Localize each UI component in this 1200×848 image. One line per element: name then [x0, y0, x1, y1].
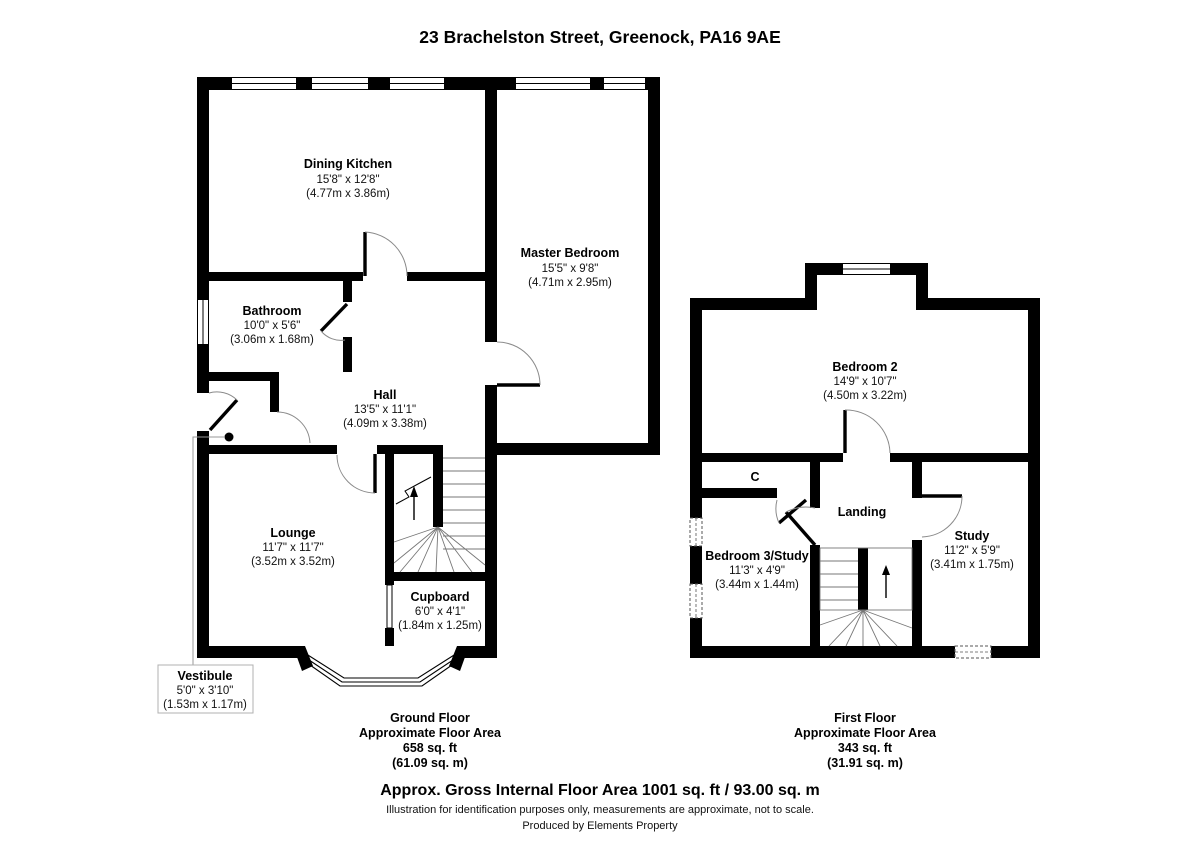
- produced-by-text: Produced by Elements Property: [522, 820, 678, 832]
- room-dims-metric: (3.52m x 3.52m): [251, 556, 335, 568]
- room-label: Dining Kitchen: [304, 157, 392, 171]
- floor-summary-line: (31.91 sq. m): [827, 756, 903, 770]
- floor-summary-line: Approximate Floor Area: [359, 726, 502, 740]
- room-dims-metric: (1.53m x 1.17m): [163, 699, 247, 711]
- room-label: Cupboard: [410, 590, 469, 604]
- room-label: Landing: [838, 505, 887, 519]
- room-bedroom-2: Bedroom 2 14'9" x 10'7" (4.50m x 3.22m): [823, 360, 907, 402]
- room-dining-kitchen: Dining Kitchen 15'8" x 12'8" (4.77m x 3.…: [304, 157, 392, 200]
- dashed-window: [955, 646, 991, 658]
- floor-summary-line: Ground Floor: [390, 711, 470, 725]
- dashed-window: [690, 518, 702, 546]
- room-dims-metric: (4.50m x 3.22m): [823, 390, 907, 402]
- room-dims-imperial: 5'0" x 3'10": [177, 685, 234, 697]
- floorplan-canvas: 23 Brachelston Street, Greenock, PA16 9A…: [0, 0, 1200, 848]
- floor-summary-line: First Floor: [834, 711, 896, 725]
- room-label: Hall: [374, 388, 397, 402]
- room-dims-metric: (3.41m x 1.75m): [930, 559, 1014, 571]
- room-label: Bedroom 3/Study: [705, 549, 809, 563]
- room-label: Study: [955, 529, 990, 543]
- room-dims-imperial: 15'5" x 9'8": [542, 263, 599, 275]
- room-dims-metric: (4.77m x 3.86m): [306, 188, 390, 200]
- room-dims-imperial: 10'0" x 5'6": [244, 320, 301, 332]
- room-dims-imperial: 14'9" x 10'7": [833, 376, 896, 388]
- room-cupboard-c: C: [750, 470, 759, 484]
- dashed-window: [690, 584, 702, 618]
- window: [232, 77, 296, 90]
- window: [516, 77, 590, 90]
- room-dims-imperial: 11'3" x 4'9": [729, 565, 785, 577]
- window: [312, 77, 368, 90]
- room-label: Bedroom 2: [832, 360, 897, 374]
- bathroom-window: [197, 300, 209, 344]
- window: [390, 77, 444, 90]
- room-label: Bathroom: [242, 304, 301, 318]
- page-background: [0, 0, 1200, 848]
- room-dims-metric: (4.09m x 3.38m): [343, 418, 427, 430]
- vestibule-marker-dot: [225, 433, 234, 442]
- room-dims-metric: (4.71m x 2.95m): [528, 277, 612, 289]
- room-dims-imperial: 15'8" x 12'8": [316, 174, 379, 186]
- floor-summary-line: 658 sq. ft: [403, 741, 458, 755]
- window: [604, 77, 645, 90]
- floor-summary-line: 343 sq. ft: [838, 741, 893, 755]
- room-label: C: [750, 470, 759, 484]
- room-label: Vestibule: [178, 669, 233, 683]
- floor-summary-line: (61.09 sq. m): [392, 756, 468, 770]
- room-dims-metric: (3.44m x 1.44m): [715, 579, 799, 591]
- floor-summary-line: Approximate Floor Area: [794, 726, 937, 740]
- gross-area-text: Approx. Gross Internal Floor Area 1001 s…: [380, 782, 820, 799]
- dormer-window: [843, 263, 890, 275]
- room-dims-imperial: 6'0" x 4'1": [415, 606, 465, 618]
- room-landing: Landing: [838, 505, 887, 519]
- room-dims-imperial: 13'5" x 11'1": [354, 404, 416, 416]
- room-dims-metric: (3.06m x 1.68m): [230, 334, 314, 346]
- room-dims-metric: (1.84m x 1.25m): [398, 620, 482, 632]
- room-label: Lounge: [270, 526, 315, 540]
- room-dims-imperial: 11'7" x 11'7": [262, 542, 323, 554]
- page-title: 23 Brachelston Street, Greenock, PA16 9A…: [419, 27, 781, 47]
- room-label: Master Bedroom: [521, 246, 620, 260]
- disclaimer-text: Illustration for identification purposes…: [386, 804, 814, 816]
- room-dims-imperial: 11'2" x 5'9": [944, 545, 1000, 557]
